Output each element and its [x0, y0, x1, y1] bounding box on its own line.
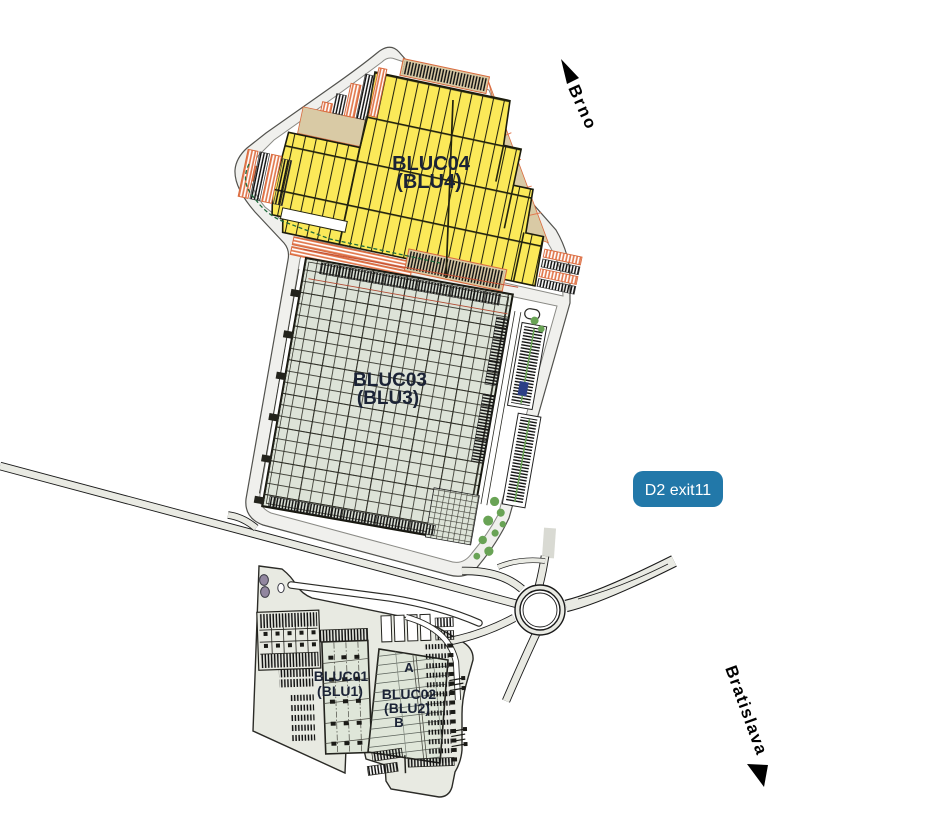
svg-text:(BLU1): (BLU1) [317, 683, 363, 699]
svg-text:(BLU2): (BLU2) [384, 700, 430, 716]
svg-text:(BLU3): (BLU3) [357, 388, 419, 409]
svg-text:(BLU4): (BLU4) [396, 171, 462, 193]
svg-text:A: A [404, 660, 414, 675]
svg-text:B: B [394, 715, 403, 730]
svg-text:BLUC01: BLUC01 [314, 668, 369, 684]
svg-text:D2 exit11: D2 exit11 [645, 482, 712, 499]
